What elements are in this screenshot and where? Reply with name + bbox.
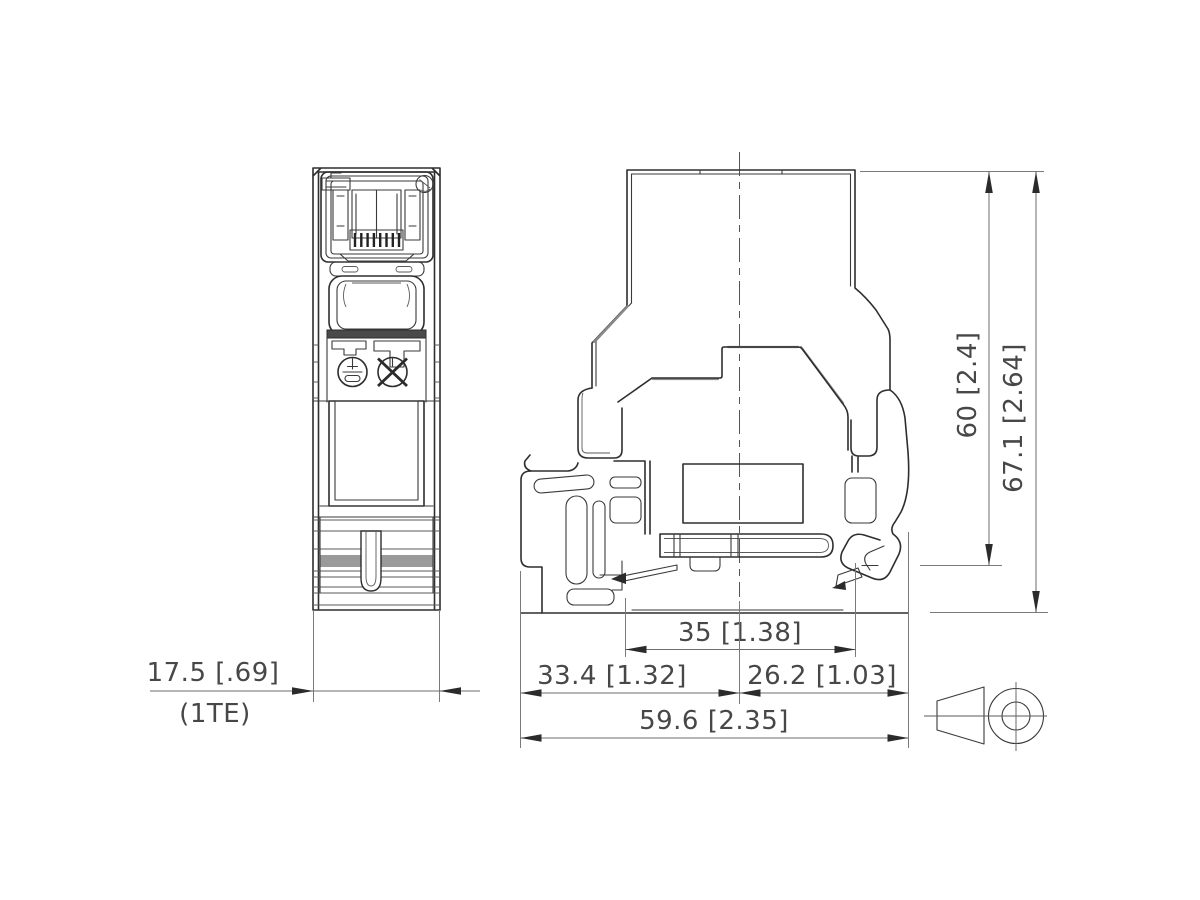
dimension-drawing: 17.5 [.69] (1TE) 35 [1.38] 33.4 [1.32] 2… [0,0,1200,900]
side-view [521,152,909,613]
front-view [313,168,440,610]
dim-front-width: 17.5 [.69] (1TE) [147,610,480,729]
dim-total-height-text: 67.1 [2.64] [999,343,1029,493]
din-foot-stripes [313,517,440,605]
dim-total-width: 59.6 [2.35] [521,706,909,742]
dim-right-span-text: 26.2 [1.03] [747,661,897,691]
technical-drawing-page: 17.5 [.69] (1TE) 35 [1.38] 33.4 [1.32] 2… [0,0,1200,900]
right-mount-claw [832,390,909,590]
first-angle-projection-icon [924,682,1047,751]
cap-step-tabs [327,338,426,402]
rail-channel [660,534,833,571]
right-window [845,478,876,523]
foot-slot-large [566,496,587,584]
rj45-foot-right [396,267,412,273]
cage-clamp-window [313,401,440,517]
left-wing-hook [578,388,622,458]
dim-left-span-text: 33.4 [1.32] [537,661,687,691]
foot-hook-slot [534,474,595,493]
dim-total-width-text: 59.6 [2.35] [639,706,789,736]
rj45-jack [321,172,433,276]
din-rail-tab [361,531,381,591]
rj45-plug-cavity [352,190,401,238]
foot-bottom-pad [567,589,614,605]
marking-window [683,464,803,523]
wall-ticks [313,345,440,398]
housing-inner-walls [596,170,851,386]
rj45-foot-left [342,267,358,273]
dim-front-width-text: 17.5 [.69] [147,658,280,688]
earth-contact-icon [338,358,367,387]
locking-cap [327,276,426,338]
projection-cone [937,687,984,744]
right-wing-hook [851,390,890,472]
foot-slot-small [593,501,605,578]
dimensions: 17.5 [.69] (1TE) 35 [1.38] 33.4 [1.32] 2… [147,172,1048,749]
dim-rail-height-text: 60 [2.4] [953,332,983,439]
housing-outline [592,170,890,390]
retainer-bar [327,330,426,338]
no-contact-icon [378,358,407,387]
dim-front-width-note: (1TE) [179,699,251,729]
